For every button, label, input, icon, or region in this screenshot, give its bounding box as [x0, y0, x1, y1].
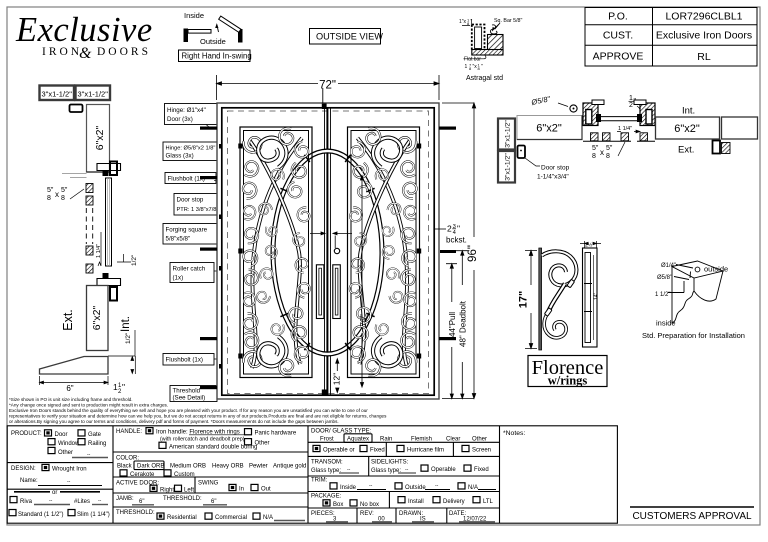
- svg-text:x: x: [600, 148, 604, 157]
- svg-text:Int.: Int.: [682, 106, 695, 117]
- svg-text:5": 5": [61, 187, 68, 194]
- svg-text:Black: Black: [117, 464, 133, 470]
- svg-text:Commercial: Commercial: [215, 515, 247, 521]
- svg-text:Box: Box: [333, 502, 343, 508]
- svg-text:OUTSIDE VIEW: OUTSIDE VIEW: [316, 32, 383, 42]
- svg-text:*Any change once signed and se: *Any change once signed and sent to prod…: [9, 403, 168, 408]
- svg-text:Dark ORB: Dark ORB: [137, 464, 164, 470]
- svg-text:8: 8: [61, 195, 65, 202]
- svg-text:Inside: Inside: [184, 11, 204, 20]
- svg-text:Outside: Outside: [405, 485, 426, 491]
- svg-text:Other: Other: [472, 437, 487, 443]
- svg-text:#Lites: #Lites: [74, 499, 90, 505]
- svg-text:6": 6": [66, 384, 73, 393]
- svg-text:Glass (3x): Glass (3x): [166, 153, 194, 160]
- svg-text:Ø5/8": Ø5/8": [657, 275, 672, 281]
- svg-text:THRESHOLD:: THRESHOLD:: [116, 510, 155, 516]
- svg-text:Slim (1 1/4"): Slim (1 1/4"): [77, 512, 110, 518]
- svg-text:Railing: Railing: [88, 441, 106, 447]
- svg-text:1/2": 1/2": [131, 254, 138, 266]
- svg-text:Right Hand In-swing: Right Hand In-swing: [182, 51, 252, 60]
- svg-text:Delivery: Delivery: [443, 499, 465, 505]
- svg-text:Operable or: Operable or: [323, 448, 355, 454]
- svg-text:(1x): (1x): [173, 275, 184, 282]
- svg-text:Hurricane film: Hurricane film: [407, 448, 444, 454]
- svg-text:Rain: Rain: [380, 437, 392, 443]
- svg-text:Outside: Outside: [200, 37, 226, 46]
- svg-text:1: 1: [465, 64, 468, 70]
- svg-text:TRIM:: TRIM:: [311, 478, 328, 484]
- svg-text:Wrought Iron: Wrought Iron: [52, 467, 87, 473]
- svg-text:Left: Left: [184, 487, 194, 493]
- svg-text:PIECES:: PIECES:: [311, 511, 335, 517]
- svg-text:CUST.: CUST.: [603, 30, 633, 42]
- svg-text:--: --: [347, 467, 351, 473]
- svg-text:Custom: Custom: [174, 472, 195, 478]
- svg-text:Ext.: Ext.: [678, 145, 694, 156]
- svg-text:(See Detail): (See Detail): [173, 395, 206, 402]
- svg-text:--: --: [405, 467, 409, 473]
- svg-text:PRODUCT:: PRODUCT:: [11, 431, 42, 437]
- svg-text:Standard (1 1/2"): Standard (1 1/2"): [18, 512, 64, 518]
- svg-text:Exclusive Iron Doors stands be: Exclusive Iron Doors stands behind the q…: [9, 408, 368, 413]
- svg-text:DESIGN:: DESIGN:: [11, 466, 36, 472]
- svg-text:6"x2": 6"x2": [91, 306, 103, 331]
- svg-text:Ext.: Ext.: [61, 309, 75, 331]
- svg-text:--: --: [369, 483, 373, 489]
- svg-text:2½": 2½": [585, 241, 594, 248]
- svg-text:6"x2": 6"x2": [94, 126, 106, 151]
- svg-text:THRESHOLD:: THRESHOLD:: [163, 496, 202, 502]
- svg-text:8: 8: [606, 153, 610, 160]
- svg-text:14": 14": [594, 292, 600, 300]
- svg-text:96": 96": [467, 245, 479, 262]
- svg-text:N/A: N/A: [263, 515, 273, 521]
- svg-text:CUSTOMERS APPROVAL: CUSTOMERS APPROVAL: [632, 511, 752, 522]
- svg-text:8: 8: [592, 153, 596, 160]
- svg-text:Other: Other: [58, 450, 73, 456]
- svg-text:70": 70": [358, 314, 368, 326]
- svg-text:Antique gold: Antique gold: [273, 464, 306, 470]
- svg-text:Hinge: Ø1"x4": Hinge: Ø1"x4": [167, 107, 206, 114]
- svg-text:(with rollercatch and deadbolt: (with rollercatch and deadbolt prep): [160, 437, 245, 443]
- svg-text:Roller catch: Roller catch: [173, 266, 206, 273]
- svg-text:JAMB:: JAMB:: [116, 496, 134, 502]
- svg-text:Door stop: Door stop: [541, 165, 570, 172]
- svg-text:2: 2: [629, 102, 633, 109]
- svg-text:x: x: [55, 190, 59, 199]
- svg-text:17": 17": [518, 291, 530, 308]
- svg-text:Operable: Operable: [431, 467, 456, 473]
- svg-text:3"x1-1/2": 3"x1-1/2": [505, 153, 512, 181]
- svg-text:Window: Window: [58, 441, 80, 447]
- svg-text:12": 12": [332, 373, 342, 385]
- svg-text:N/A: N/A: [468, 485, 478, 491]
- svg-text:&: &: [79, 45, 92, 62]
- svg-text:Pewter: Pewter: [249, 464, 268, 470]
- svg-text:1 1/4": 1 1/4": [96, 244, 102, 258]
- svg-text:Aquatex: Aquatex: [347, 437, 369, 443]
- svg-text:Name:: Name:: [20, 478, 38, 484]
- svg-text:Std. Preparation for Installat: Std. Preparation for Installation: [642, 331, 745, 340]
- svg-text:": ": [481, 64, 483, 70]
- svg-text:Inside: Inside: [340, 485, 357, 491]
- svg-text:8: 8: [47, 195, 51, 202]
- svg-text:Screen: Screen: [472, 448, 491, 454]
- svg-text:APPROVE: APPROVE: [593, 51, 644, 63]
- svg-text:*Size shown in PO is unit size: *Size shown in PO is unit size including…: [9, 397, 133, 402]
- svg-text:": ": [457, 224, 460, 234]
- svg-text:REV:: REV:: [360, 511, 374, 517]
- svg-text:Exclusive Iron Doors: Exclusive Iron Doors: [656, 30, 752, 42]
- svg-text:1-1/4"x3/4": 1-1/4"x3/4": [537, 174, 569, 181]
- svg-text:Hinge: Ø5/8"x2 1/8": Hinge: Ø5/8"x2 1/8": [166, 146, 216, 152]
- svg-text:--: --: [67, 479, 71, 485]
- svg-text:Medium ORB: Medium ORB: [170, 464, 206, 470]
- svg-text:PACKAGE:: PACKAGE:: [311, 494, 342, 500]
- svg-text:3"x1-1/2": 3"x1-1/2": [505, 120, 512, 148]
- svg-text:SIDELIGHTS:: SIDELIGHTS:: [371, 460, 409, 466]
- svg-text:Astragal std: Astragal std: [466, 75, 503, 82]
- svg-text:P.O.: P.O.: [608, 11, 628, 23]
- svg-text:6"x2": 6"x2": [674, 123, 700, 135]
- svg-text:Threshold: Threshold: [173, 388, 201, 395]
- svg-text:Glass type:: Glass type:: [371, 468, 401, 474]
- svg-text:Cerakote: Cerakote: [130, 472, 155, 478]
- svg-text:outside: outside: [704, 265, 728, 274]
- svg-text:Panic hardware: Panic hardware: [255, 431, 297, 437]
- svg-text:Flemish: Flemish: [411, 437, 432, 443]
- svg-text:Clear: Clear: [446, 437, 460, 443]
- svg-text:--: --: [49, 498, 53, 504]
- svg-text:48" Deadbolt: 48" Deadbolt: [459, 300, 468, 347]
- svg-text:3"x1-1/2": 3"x1-1/2": [78, 90, 109, 99]
- svg-text:2: 2: [447, 224, 452, 234]
- svg-text:--: --: [435, 483, 439, 489]
- svg-text:In: In: [239, 487, 244, 493]
- svg-text:--: --: [98, 498, 102, 504]
- svg-text:Flushbolt (1x): Flushbolt (1x): [166, 357, 203, 364]
- svg-text:Forging square: Forging square: [166, 227, 208, 234]
- svg-text:Riva: Riva: [20, 499, 33, 505]
- svg-text:5": 5": [47, 187, 54, 194]
- svg-text:5/8"x5/8": 5/8"x5/8": [166, 236, 191, 243]
- svg-text:or alterations.By signing you: or alterations.By signing you agree to o…: [9, 419, 339, 424]
- svg-text:Heavy ORB: Heavy ORB: [212, 464, 244, 470]
- svg-text:SWING: SWING: [198, 481, 219, 487]
- svg-text:1 1/4": 1 1/4": [618, 126, 632, 132]
- svg-text:*Notes:: *Notes:: [503, 430, 525, 437]
- svg-text:Right: Right: [160, 487, 174, 493]
- svg-text:or: or: [52, 490, 57, 496]
- svg-text:Residential: Residential: [167, 515, 197, 521]
- svg-text:DOORS: DOORS: [97, 46, 151, 58]
- svg-text:72": 72": [319, 80, 336, 92]
- svg-text:No box: No box: [360, 502, 379, 508]
- svg-text:Door stop: Door stop: [177, 197, 204, 204]
- svg-text:HANDLE:: HANDLE:: [116, 429, 142, 435]
- svg-text:1"x: 1"x: [459, 19, 467, 25]
- svg-text:Fixed: Fixed: [474, 467, 489, 473]
- svg-text:Install: Install: [408, 499, 424, 505]
- svg-text:1: 1: [629, 95, 633, 102]
- svg-text:RL: RL: [697, 51, 711, 63]
- svg-text:bckst.: bckst.: [446, 236, 467, 245]
- svg-text:representatives to verify your: representatives to verify your situation…: [9, 414, 387, 419]
- svg-text:Flushbolt (1x): Flushbolt (1x): [168, 176, 205, 183]
- svg-text:IRON: IRON: [42, 46, 82, 58]
- svg-text:Door: Door: [55, 432, 68, 438]
- svg-text:44"Pull: 44"Pull: [448, 312, 457, 337]
- svg-text:Gate: Gate: [88, 432, 102, 438]
- svg-text:1/2": 1/2": [125, 332, 132, 344]
- svg-text:w/rings: w/rings: [548, 374, 588, 388]
- svg-text:Out: Out: [261, 487, 271, 493]
- svg-text:Frost: Frost: [320, 437, 334, 443]
- svg-text:Int.: Int.: [120, 316, 132, 332]
- svg-text:Sq. Bar 5/8": Sq. Bar 5/8": [494, 18, 522, 24]
- svg-text:TRANSOM:: TRANSOM:: [311, 460, 343, 466]
- svg-text:3"x1-1/2": 3"x1-1/2": [42, 90, 73, 99]
- svg-text:": ": [122, 382, 125, 392]
- svg-text:Glass type:: Glass type:: [311, 468, 341, 474]
- svg-text:5": 5": [606, 145, 613, 152]
- svg-text:LTL: LTL: [483, 499, 494, 505]
- svg-text:LOR7296CLBL1: LOR7296CLBL1: [665, 11, 742, 23]
- svg-text:5": 5": [592, 145, 599, 152]
- svg-text:PTR: 1 3/8"x7/8": PTR: 1 3/8"x7/8": [177, 207, 219, 213]
- svg-text:Exclusive: Exclusive: [15, 11, 153, 49]
- svg-text:--: --: [87, 452, 91, 458]
- svg-text:6"x2": 6"x2": [536, 123, 562, 135]
- svg-text:Door (3x): Door (3x): [167, 116, 193, 123]
- svg-text:Fixed: Fixed: [370, 448, 385, 454]
- svg-text:Other: Other: [255, 441, 270, 447]
